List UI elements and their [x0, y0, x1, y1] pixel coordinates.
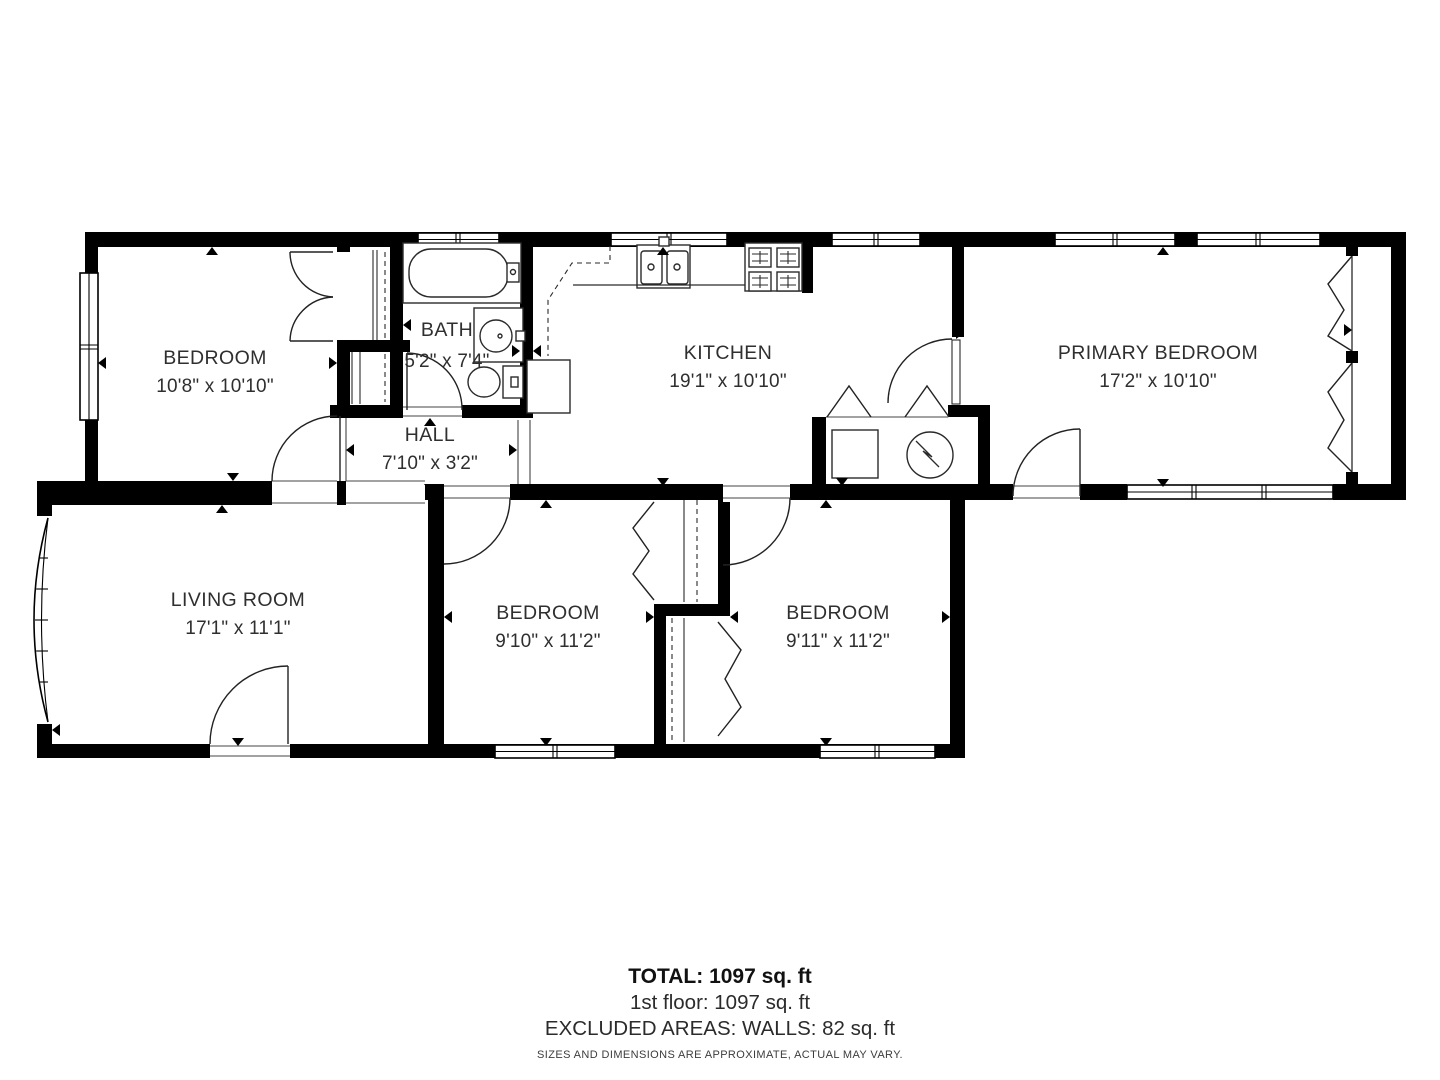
summary-total: TOTAL: 1097 sq. ft	[628, 965, 812, 988]
washer	[832, 430, 878, 478]
room-dimensions: 9'10" x 11'2"	[495, 631, 600, 652]
room-label-kitchen: KITCHEN 19'1" x 10'10"	[669, 342, 787, 392]
primary-top-window-b	[1197, 233, 1320, 246]
kitchen-rear-door	[888, 339, 960, 404]
closet-accordion-upper	[633, 502, 654, 600]
front-door	[210, 666, 288, 744]
bow-window	[34, 516, 52, 724]
summary-excluded: EXCLUDED AREAS: WALLS: 82 sq. ft	[545, 1017, 895, 1040]
summary-first-floor: 1st floor: 1097 sq. ft	[630, 991, 810, 1014]
room-name: BATH	[421, 319, 473, 341]
primary-bottom-window	[1127, 485, 1333, 499]
room-dimensions: 7'10" x 3'2"	[382, 453, 478, 474]
floor-plan-page: BEDROOM 10'8" x 10'10" BATH 5'2" x 7'4" …	[0, 0, 1440, 1080]
room-dimensions: 17'1" x 11'1"	[185, 618, 290, 639]
summary-disclaimer: SIZES AND DIMENSIONS ARE APPROXIMATE, AC…	[537, 1049, 903, 1061]
room-name: LIVING ROOM	[171, 589, 305, 611]
dryer	[907, 432, 953, 478]
primary-closet-doors	[1328, 244, 1358, 484]
room-dimensions: 5'2" x 7'4"	[404, 351, 489, 372]
room-dimensions: 10'8" x 10'10"	[156, 376, 274, 397]
room-label-hall: HALL 7'10" x 3'2"	[382, 424, 478, 474]
room-dimensions: 17'2" x 10'10"	[1099, 371, 1217, 392]
closet-accordion-lower	[718, 622, 741, 736]
stove	[745, 243, 802, 291]
bedroom3-door	[723, 498, 790, 565]
room-label-bedroom-bottom-middle: BEDROOM 9'10" x 11'2"	[495, 602, 600, 652]
room-name: BEDROOM	[786, 602, 890, 624]
bedroom2-door	[444, 498, 510, 564]
room-label-primary-bedroom: PRIMARY BEDROOM 17'2" x 10'10"	[1058, 342, 1258, 392]
room-name: KITCHEN	[684, 342, 772, 364]
room-label-bedroom-bottom-right: BEDROOM 9'11" x 11'2"	[786, 602, 890, 652]
summary-block: TOTAL: 1097 sq. ft 1st floor: 1097 sq. f…	[537, 965, 903, 1061]
room-name: PRIMARY BEDROOM	[1058, 342, 1258, 364]
bathtub	[403, 243, 521, 303]
kitchen-sink	[637, 237, 690, 288]
room-label-bedroom-top-left: BEDROOM 10'8" x 10'10"	[156, 347, 274, 397]
room-dimensions: 9'11" x 11'2"	[786, 631, 890, 652]
kitchen-right-window	[832, 233, 920, 246]
room-name: BEDROOM	[496, 602, 600, 624]
room-dimensions: 19'1" x 10'10"	[669, 371, 787, 392]
bedroom1-left-window	[80, 273, 98, 420]
room-label-living-room: LIVING ROOM 17'1" x 11'1"	[171, 589, 305, 639]
bedroom3-bottom-window	[820, 745, 935, 758]
room-name: BEDROOM	[163, 347, 267, 369]
bedroom1-closet-doors	[290, 252, 333, 341]
primary-top-window-a	[1055, 233, 1175, 246]
bedroom1-door	[272, 416, 340, 481]
bedroom2-bottom-window	[495, 745, 615, 758]
room-name: HALL	[405, 424, 455, 446]
floor-plan-canvas: BEDROOM 10'8" x 10'10" BATH 5'2" x 7'4" …	[0, 0, 1440, 1080]
